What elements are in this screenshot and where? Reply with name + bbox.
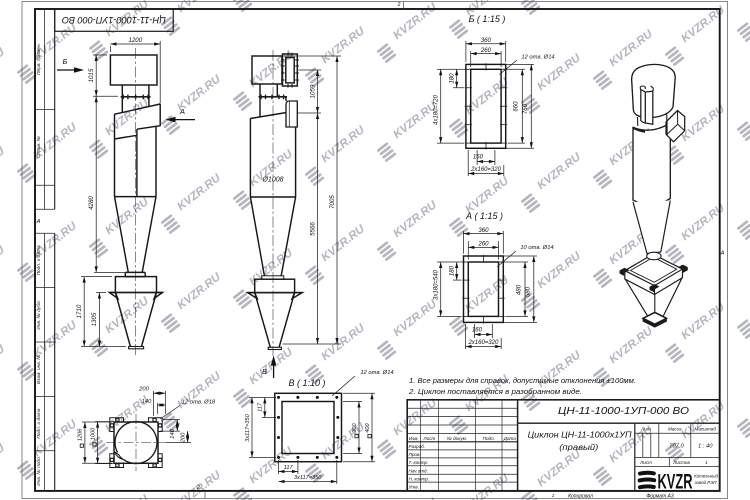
svg-text:660: 660 [513, 101, 520, 112]
svg-text:Масса: Масса [668, 427, 682, 432]
svg-text:Копировал: Копировал [568, 494, 593, 500]
svg-text:Б ( 1:15 ): Б ( 1:15 ) [469, 14, 506, 24]
svg-text:117: 117 [284, 465, 294, 471]
svg-text:1206: 1206 [78, 428, 84, 441]
svg-text:140: 140 [142, 399, 152, 405]
svg-text:12 отв. Ø18: 12 отв. Ø18 [182, 399, 216, 405]
svg-text:300: 300 [352, 422, 358, 432]
svg-text:В ( 1:10 ): В ( 1:10 ) [288, 378, 325, 388]
svg-text:А ( 1:15 ): А ( 1:15 ) [465, 211, 503, 221]
svg-text:1059: 1059 [309, 84, 316, 98]
svg-text:Утв.: Утв. [409, 485, 419, 490]
svg-text:Нач.отд.: Нач.отд. [409, 468, 428, 473]
svg-text:360: 360 [481, 37, 492, 44]
svg-text:4x180=720: 4x180=720 [434, 94, 440, 125]
svg-text:180: 180 [449, 265, 456, 276]
svg-text:Изм.: Изм. [409, 436, 419, 441]
svg-text:180: 180 [449, 73, 456, 84]
svg-text:707,0: 707,0 [669, 444, 684, 450]
svg-text:Лит.: Лит. [640, 427, 652, 432]
svg-text:Т. контр.: Т. контр. [409, 460, 429, 465]
svg-text:10 отв. Ø14: 10 отв. Ø14 [520, 245, 553, 251]
svg-text:ЦН-11-1000-1УП-000 ВО: ЦН-11-1000-1УП-000 ВО [558, 406, 689, 417]
svg-text:Лист: Лист [639, 460, 652, 465]
svg-text:1015: 1015 [88, 68, 95, 82]
svg-text:360: 360 [478, 227, 489, 234]
svg-text:В: В [262, 367, 267, 376]
svg-text:завод РЭП: завод РЭП [694, 480, 718, 485]
svg-text:Инв. № дубл.: Инв. № дубл. [36, 300, 42, 330]
svg-text:Формат А3: Формат А3 [646, 494, 674, 500]
svg-text:1000: 1000 [90, 427, 96, 440]
svg-text:Подп. и дата: Подп. и дата [36, 408, 42, 438]
svg-text:1200: 1200 [128, 37, 142, 44]
svg-text:1 : 40: 1 : 40 [698, 444, 713, 450]
svg-text:2: 2 [397, 2, 401, 8]
svg-text:KVZR: KVZR [658, 471, 693, 494]
svg-text:Пров.: Пров. [409, 452, 421, 457]
svg-text:1. Все размеры для справок, до: 1. Все размеры для справок, допустимые о… [409, 377, 636, 385]
svg-text:1: 1 [552, 493, 555, 499]
svg-text:Инв. № подл.: Инв. № подл. [36, 456, 42, 486]
svg-text:А: А [720, 251, 725, 257]
svg-text:2x160=320: 2x160=320 [470, 167, 502, 173]
svg-text:Н. контр.: Н. контр. [409, 476, 430, 481]
svg-text:Справ. №: Справ. № [36, 136, 42, 158]
svg-text:3x117=350: 3x117=350 [245, 413, 251, 441]
svg-text:12 отв. Ø14: 12 отв. Ø14 [521, 55, 554, 61]
svg-text:ЦН-11-1000-1УП-000 ВО: ЦН-11-1000-1УП-000 ВО [62, 15, 166, 25]
svg-text:Лист: Лист [422, 436, 435, 441]
svg-text:Разраб.: Разраб. [409, 444, 426, 449]
svg-text:480: 480 [515, 284, 522, 295]
svg-text:760: 760 [522, 103, 529, 114]
svg-text:Подп.: Подп. [483, 436, 495, 441]
svg-text:2x160=320: 2x160=320 [467, 340, 499, 346]
svg-text:200: 200 [180, 432, 186, 443]
svg-text:Котельный: Котельный [694, 473, 718, 478]
svg-text:117: 117 [258, 402, 264, 412]
svg-text:Взам. инв. №: Взам. инв. № [36, 354, 42, 384]
svg-text:3x117=350: 3x117=350 [294, 475, 322, 481]
svg-text:2: 2 [196, 485, 200, 491]
svg-text:(правый): (правый) [559, 442, 598, 452]
svg-text:1710: 1710 [76, 304, 83, 318]
svg-text:А: А [179, 107, 185, 116]
svg-text:Подп. и дата: Подп. и дата [36, 245, 42, 275]
svg-text:3x180=540: 3x180=540 [434, 269, 440, 300]
svg-text:140: 140 [170, 428, 176, 438]
svg-text:580: 580 [524, 286, 531, 297]
svg-text:Дата: Дата [503, 436, 517, 441]
svg-text:160: 160 [472, 327, 483, 334]
svg-text:160: 160 [473, 154, 484, 161]
svg-text:4280: 4280 [88, 196, 95, 210]
svg-text:А: А [36, 219, 41, 225]
svg-text:7005: 7005 [329, 195, 336, 209]
svg-text:200: 200 [138, 386, 149, 392]
svg-text:Листов: Листов [672, 460, 690, 465]
svg-text:400: 400 [365, 422, 371, 432]
svg-text:260: 260 [480, 47, 492, 54]
svg-text:12 отв. Ø14: 12 отв. Ø14 [360, 370, 393, 376]
svg-text:5566: 5566 [309, 222, 316, 236]
svg-text:№ докум.: № докум. [447, 436, 467, 441]
svg-text:1: 1 [705, 460, 708, 465]
svg-text:Ø1008: Ø1008 [261, 177, 283, 184]
svg-text:Циклон ЦН-11-1000х1УП: Циклон ЦН-11-1000х1УП [528, 429, 633, 439]
svg-text:260: 260 [477, 241, 489, 248]
svg-text:Перв. примен.: Перв. примен. [36, 43, 42, 75]
svg-text:Масштаб: Масштаб [694, 427, 716, 432]
svg-text:2. Циклон поставляется в разоб: 2. Циклон поставляется в разобранном вид… [408, 388, 582, 396]
svg-text:Б: Б [63, 57, 68, 66]
svg-text:1305: 1305 [91, 312, 98, 326]
